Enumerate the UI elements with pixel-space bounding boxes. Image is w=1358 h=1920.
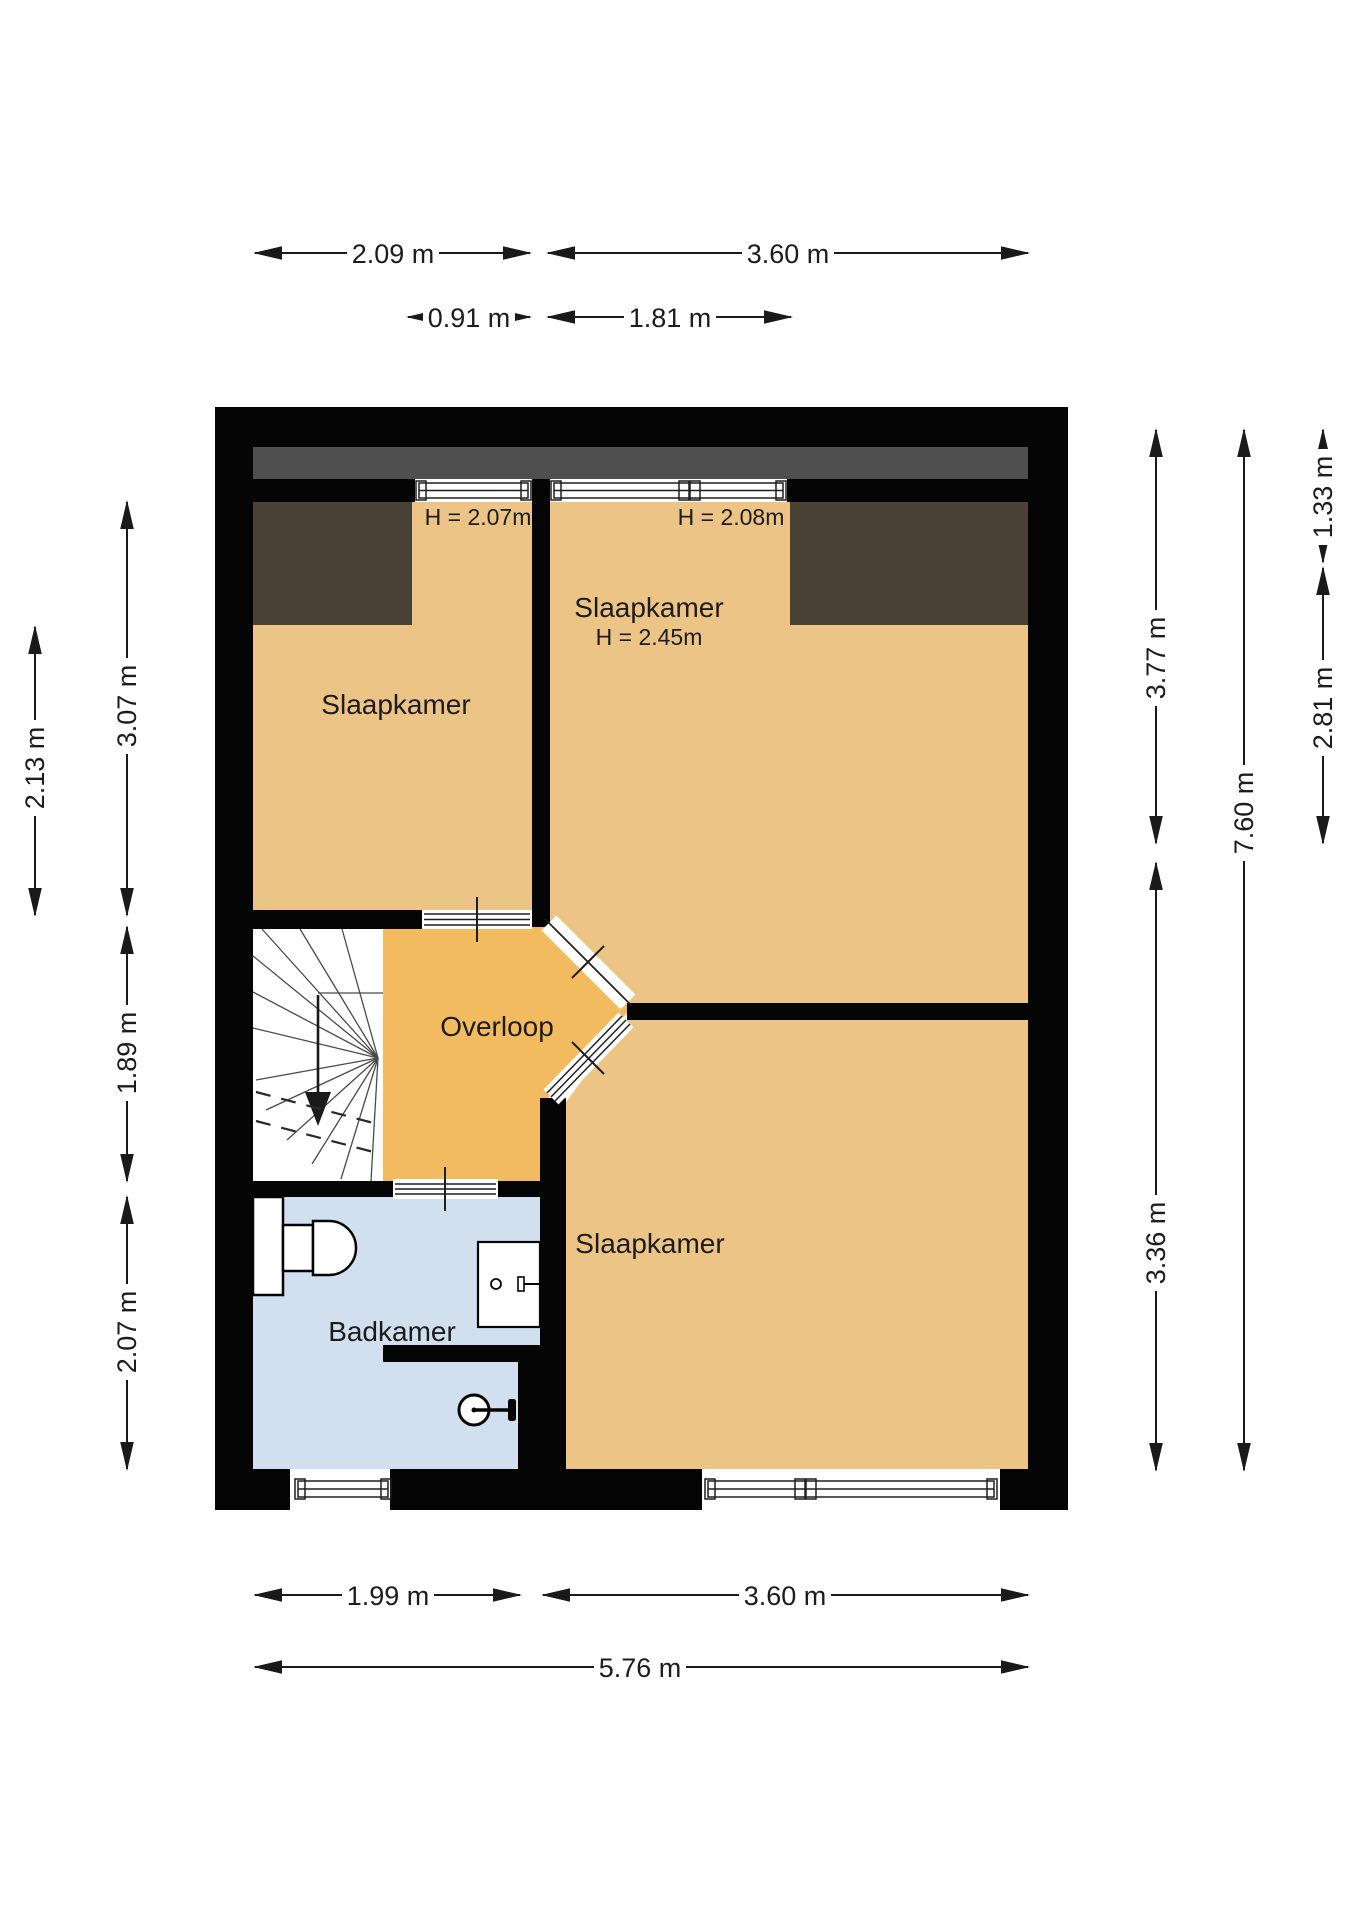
svg-text:3.60 m: 3.60 m [744, 1581, 827, 1611]
dim-left-1-89: 1.89 m [110, 927, 144, 1181]
low-ceiling-area-left [253, 502, 412, 625]
sink [478, 1242, 540, 1327]
label-height-bedroom2-window: H = 2.08m [678, 504, 785, 530]
window-bedroom2-top [550, 479, 787, 502]
wall-bedroom1-bottom [253, 910, 423, 929]
window-bedroom1-top [415, 479, 532, 502]
toilet [283, 1221, 356, 1275]
label-badkamer: Badkamer [328, 1316, 456, 1347]
svg-text:2.13 m: 2.13 m [20, 727, 50, 810]
window-bedroom3-bottom [702, 1469, 1000, 1510]
dim-bottom-5-76: 5.76 m [255, 1652, 1028, 1683]
wall-shower-top [383, 1345, 540, 1362]
floorplan-page: Slaapkamer H = 2.07m Slaapkamer H = 2.45… [0, 0, 1358, 1920]
dim-right-7-60: 7.60 m [1227, 430, 1261, 1470]
svg-text:5.76 m: 5.76 m [599, 1653, 682, 1683]
svg-text:1.81 m: 1.81 m [629, 303, 712, 333]
dim-bottom-1-99: 1.99 m [255, 1580, 520, 1611]
label-height-bedroom1: H = 2.07m [425, 504, 532, 530]
dim-top-3-60: 3.60 m [548, 238, 1028, 269]
svg-text:2.81 m: 2.81 m [1308, 667, 1338, 750]
label-slaapkamer-3: Slaapkamer [575, 1228, 724, 1259]
label-slaapkamer-2: Slaapkamer [574, 592, 723, 623]
wall-shower-side [518, 1362, 540, 1469]
svg-text:3.77 m: 3.77 m [1141, 617, 1171, 700]
label-overloop: Overloop [440, 1011, 554, 1042]
low-ceiling-area-right [790, 502, 1028, 625]
svg-text:7.60 m: 7.60 m [1229, 772, 1259, 855]
dim-left-2-13: 2.13 m [18, 627, 52, 915]
svg-text:1.33 m: 1.33 m [1308, 456, 1338, 539]
window-badkamer-bottom [290, 1469, 391, 1510]
dim-left-2-07: 2.07 m [110, 1197, 144, 1469]
wall-bathroom-top-right [498, 1181, 566, 1197]
wall-bedroom2-bottom [627, 1003, 1028, 1020]
radiator [253, 1197, 283, 1295]
dim-right-1-33: 1.33 m [1306, 430, 1340, 562]
dim-bottom-3-60: 3.60 m [543, 1580, 1028, 1611]
dim-right-3-36: 3.36 m [1139, 863, 1173, 1470]
svg-text:1.99 m: 1.99 m [347, 1581, 430, 1611]
svg-text:1.89 m: 1.89 m [112, 1012, 142, 1095]
dim-top-2-09: 2.09 m [255, 238, 530, 269]
dim-right-3-77: 3.77 m [1139, 430, 1173, 843]
dim-top-0-91: 0.91 m [408, 302, 530, 333]
wall-bathroom-bedroom3 [540, 1098, 566, 1469]
label-height-bedroom2: H = 2.45m [596, 624, 703, 650]
svg-text:2.07 m: 2.07 m [112, 1291, 142, 1374]
dim-top-1-81: 1.81 m [548, 302, 791, 333]
svg-text:0.91 m: 0.91 m [428, 303, 511, 333]
svg-text:3.07 m: 3.07 m [112, 665, 142, 748]
stairs [253, 929, 383, 1181]
svg-text:2.09 m: 2.09 m [352, 239, 435, 269]
label-slaapkamer-1: Slaapkamer [321, 689, 470, 720]
wall-bedroom1-bedroom2 [532, 479, 550, 927]
dim-right-2-81: 2.81 m [1306, 568, 1340, 843]
dim-left-3-07: 3.07 m [110, 502, 144, 915]
svg-text:3.60 m: 3.60 m [747, 239, 830, 269]
roof-edge-band [253, 447, 1028, 481]
floorplan-canvas: Slaapkamer H = 2.07m Slaapkamer H = 2.45… [0, 0, 1358, 1920]
svg-text:3.36 m: 3.36 m [1141, 1202, 1171, 1285]
wall-bathroom-top-left [253, 1181, 393, 1197]
